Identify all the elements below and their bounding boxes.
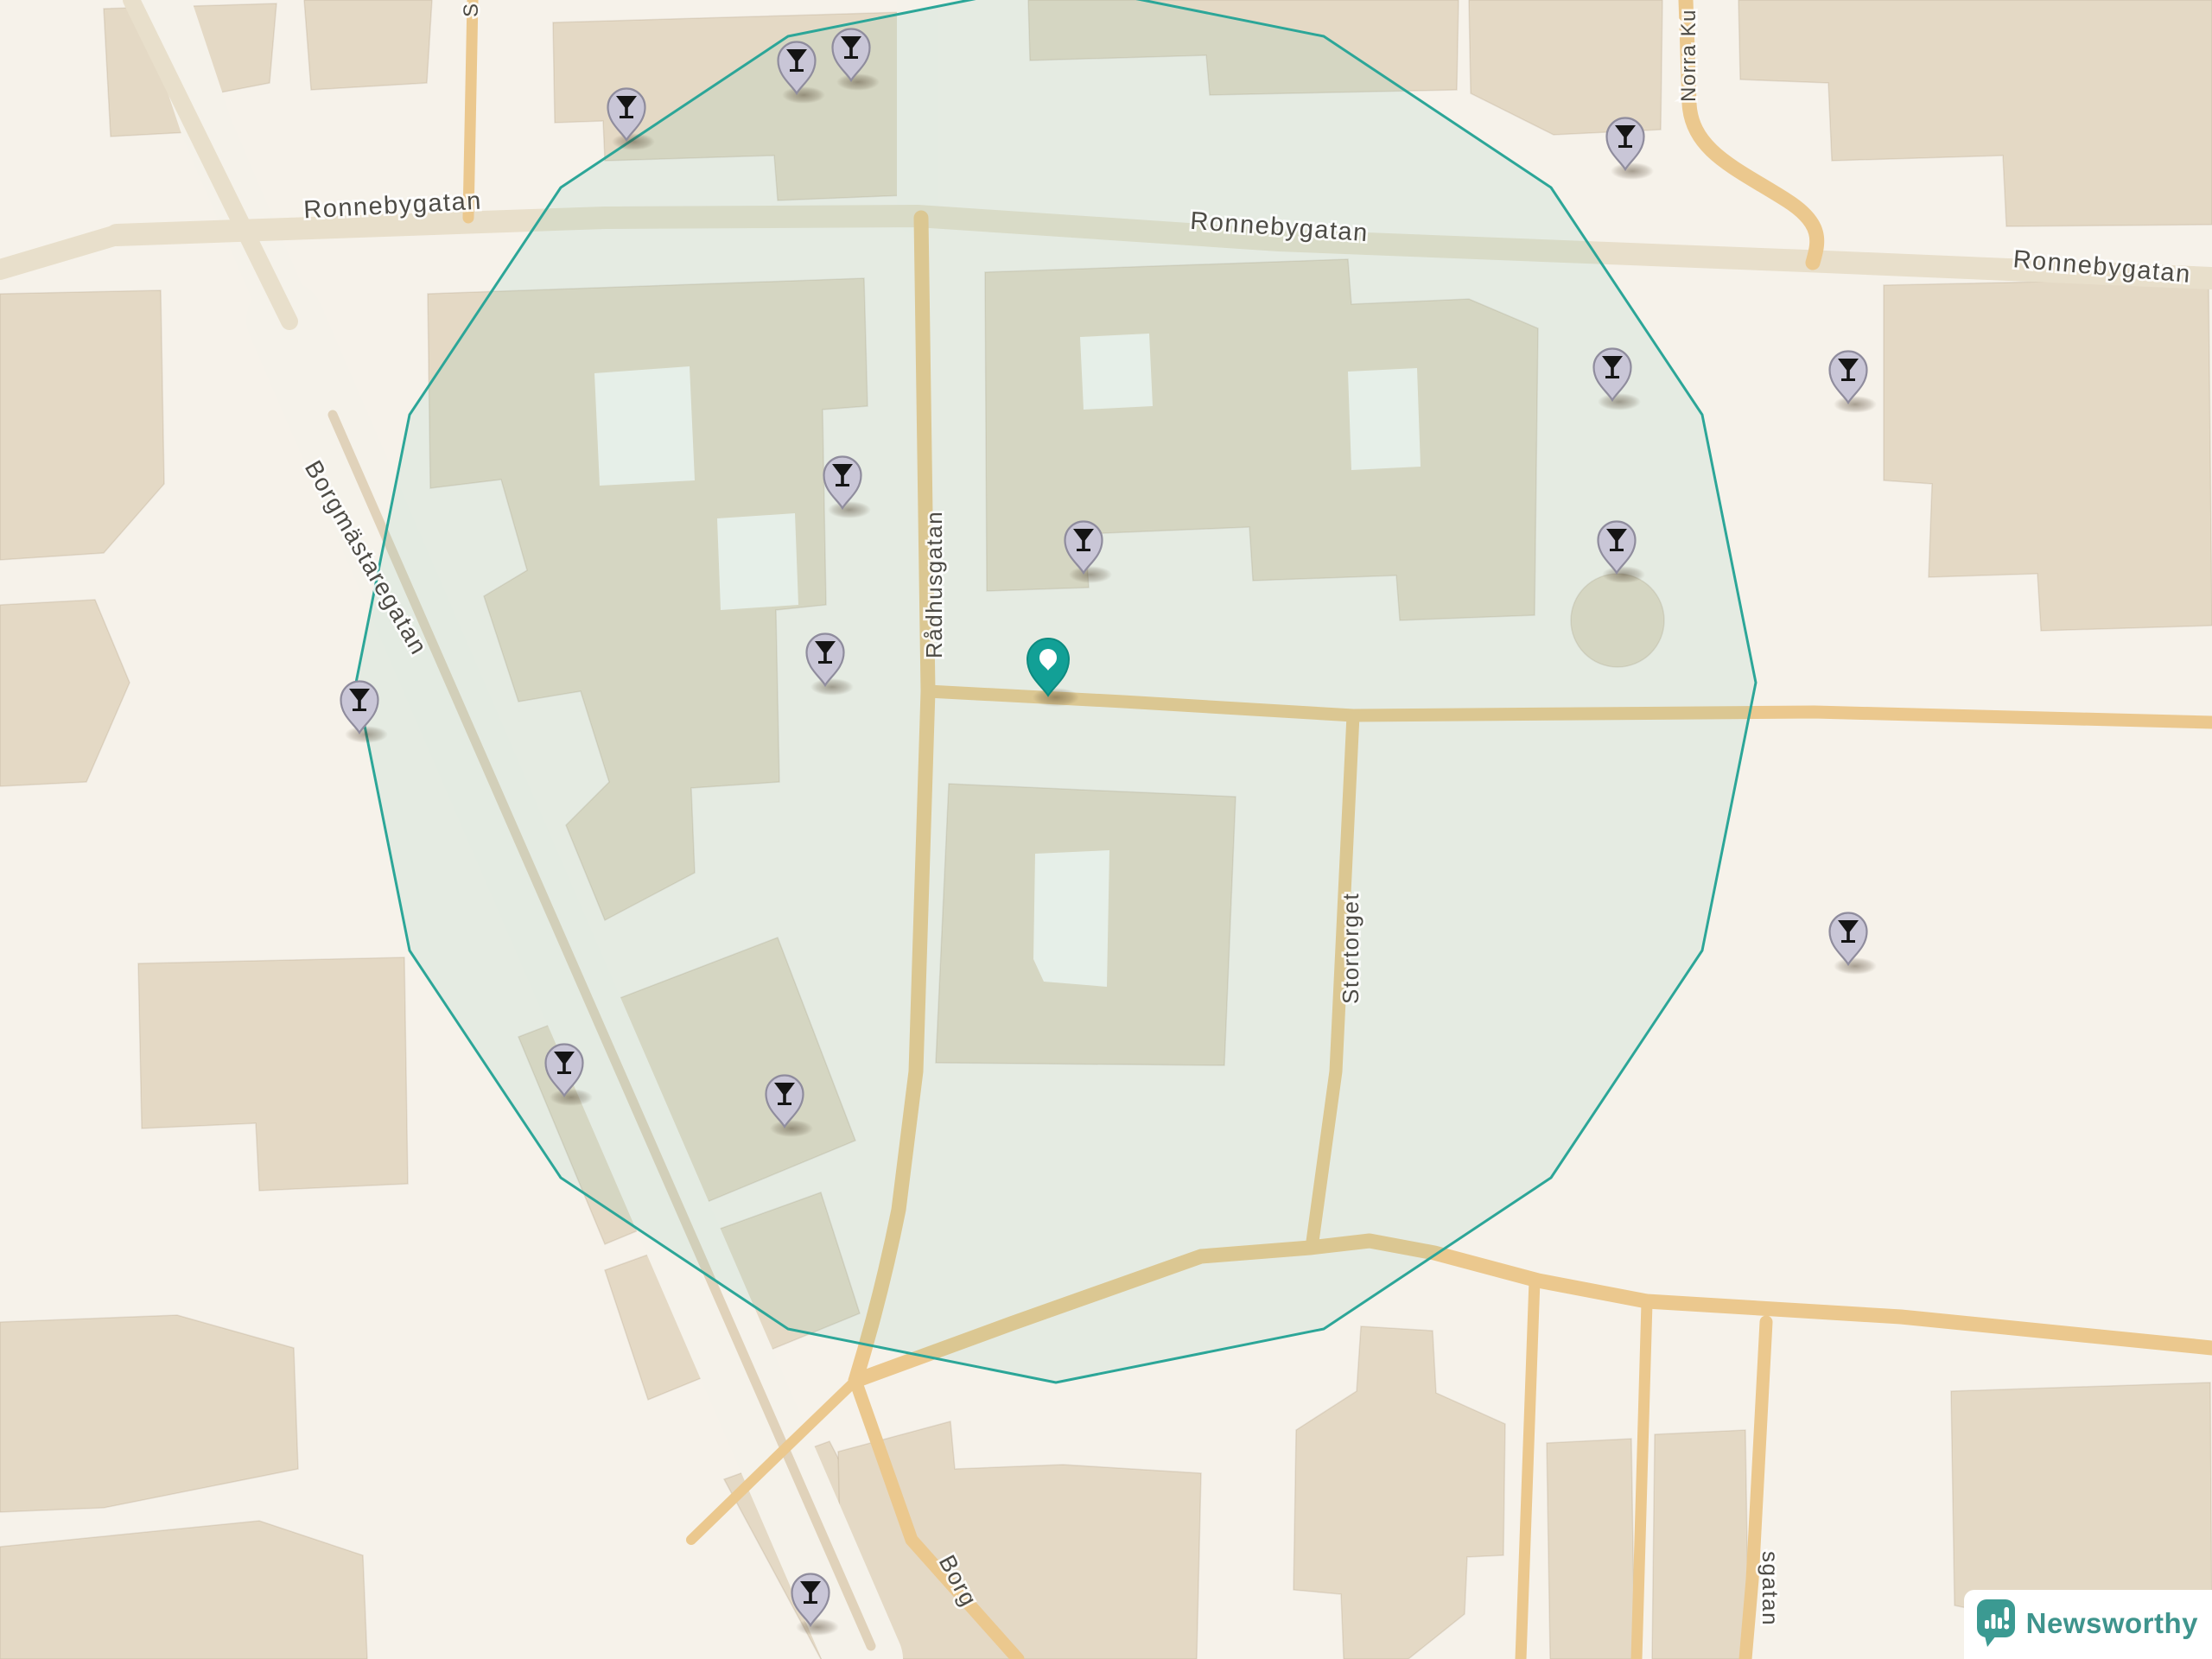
map-viewport: RonnebygatanRonnebygatanRonnebygatanBorg… xyxy=(0,0,2212,1659)
map-canvas[interactable]: RonnebygatanRonnebygatanRonnebygatanBorg… xyxy=(0,0,2212,1659)
street-label: S xyxy=(460,2,483,17)
newsworthy-bubble-chart-icon xyxy=(1976,1599,2018,1649)
newsworthy-logo-text: Newsworthy xyxy=(2026,1607,2198,1640)
street-label: Rådhusgatan xyxy=(921,511,947,658)
street-label: Norra Ku xyxy=(1677,9,1700,102)
street-label: Stortorget xyxy=(1338,893,1363,1004)
newsworthy-attribution: Newsworthy xyxy=(1964,1590,2212,1659)
street-label: sgatan xyxy=(1758,1551,1783,1626)
